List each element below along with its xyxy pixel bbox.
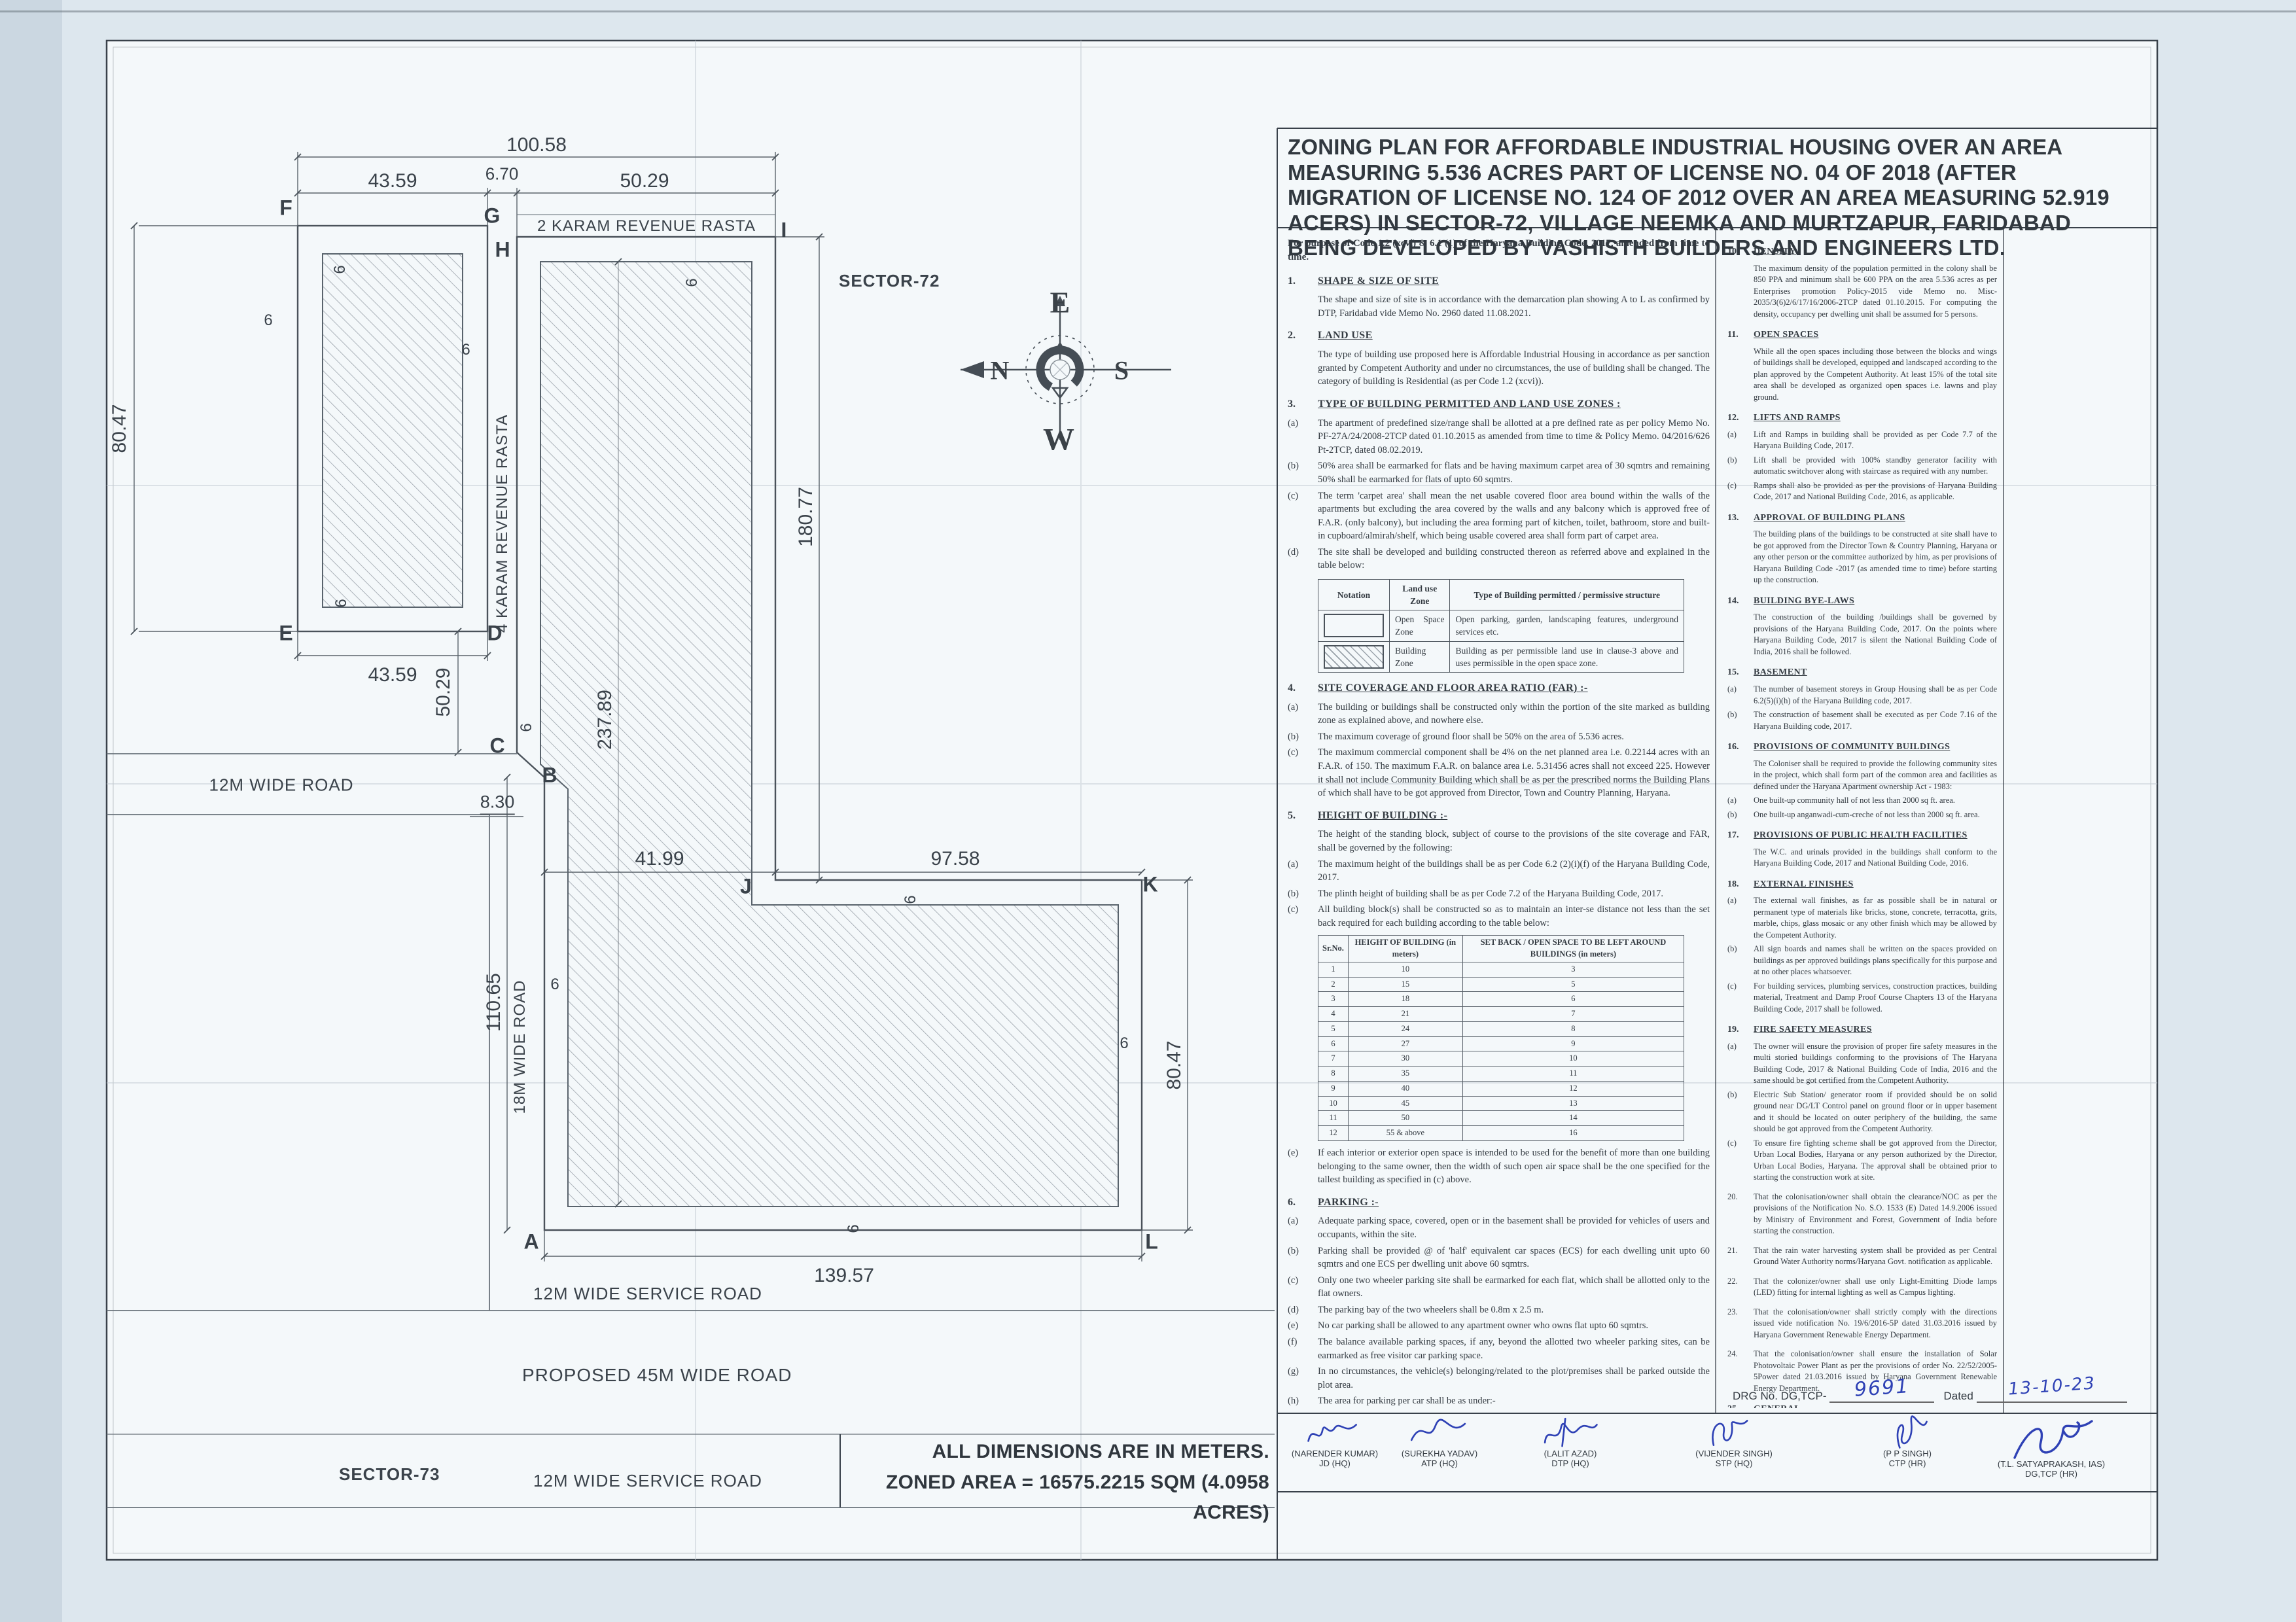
- clause-paragraph-text: Lift and Ramps in building shall be prov…: [1754, 429, 1997, 452]
- clause-paragraph-text: The term 'carpet area' shall mean the ne…: [1318, 489, 1710, 543]
- clause-paragraph-text: Only one two wheeler parking site shall …: [1318, 1274, 1710, 1301]
- clause-paragraph-text: Electric Sub Station/ generator room if …: [1754, 1089, 1997, 1135]
- clause-1: 1.SHAPE & SIZE OF SITEThe shape and size…: [1288, 274, 1710, 321]
- clause-paragraph: (g)In no circumstances, the vehicle(s) b…: [1288, 1365, 1710, 1392]
- clause-paragraph-text: The balance available parking spaces, if…: [1318, 1335, 1710, 1362]
- clause-paragraph: (b)All sign boards and names shall be wr…: [1727, 943, 1997, 978]
- clause-number: 3.: [1288, 397, 1318, 412]
- signatory-block: (SUREKHA YADAV)ATP (HQ): [1377, 1415, 1502, 1468]
- setback-cell: 30: [1348, 1051, 1462, 1067]
- clause-heading: BASEMENT: [1754, 666, 1807, 679]
- clause-paragraph-text: The number of basement storeys in Group …: [1754, 684, 1997, 707]
- clause-number: 15.: [1727, 666, 1754, 679]
- setback-cell: 55 & above: [1348, 1126, 1462, 1141]
- clause-heading-row: 2.LAND USE: [1288, 328, 1710, 344]
- clause-paragraph-text: All building block(s) shall be construct…: [1318, 903, 1710, 930]
- clause-heading: DENSITY: [1754, 245, 1796, 258]
- setback-cell: 12: [1318, 1126, 1349, 1141]
- clause-heading-row: 3.TYPE OF BUILDING PERMITTED AND LAND US…: [1288, 397, 1710, 412]
- dim-overall-width: 100.58: [506, 134, 567, 156]
- signature-icon: [1871, 1415, 1943, 1451]
- clause-paragraph: (c)For building services, plumbing servi…: [1727, 981, 1997, 1015]
- clause-paragraph: (e)No car parking shall be allowed to an…: [1288, 1319, 1710, 1333]
- clause-paragraph: 20.That the colonisation/owner shall obt…: [1727, 1191, 1997, 1237]
- signatory-designation: DTP (HQ): [1508, 1458, 1633, 1468]
- clause-paragraph: The height of the standing block, subjec…: [1288, 828, 1710, 855]
- setback-cell: 11: [1318, 1111, 1349, 1126]
- setback-row: 104513: [1318, 1096, 1684, 1111]
- setback-6-p1-top: 6: [331, 265, 349, 273]
- clause-4: 4.SITE COVERAGE AND FLOOR AREA RATIO (FA…: [1288, 681, 1710, 800]
- clause-paragraph: The construction of the building /buildi…: [1727, 612, 1997, 658]
- clause-paragraph: (b)The plinth height of building shall b…: [1288, 887, 1710, 901]
- clause-paragraph: The maximum density of the population pe…: [1727, 263, 1997, 321]
- clause-paragraph-label: (c): [1288, 1274, 1318, 1301]
- clause-paragraph: (a)The apartment of predefined size/rang…: [1288, 417, 1710, 457]
- dim-top-left: 43.59: [368, 170, 417, 192]
- signatory-name: (SUREKHA YADAV): [1377, 1449, 1502, 1458]
- setback-table: Sr.No.HEIGHT OF BUILDING (in meters)SET …: [1318, 935, 1684, 1141]
- clause-paragraph: (a)The owner will ensure the provision o…: [1727, 1041, 1997, 1087]
- setback-cell: 9: [1462, 1036, 1684, 1051]
- clause-paragraph-text: The parking bay of the two wheelers shal…: [1318, 1303, 1710, 1317]
- clause-number: 4.: [1288, 681, 1318, 696]
- setback-cell: 12: [1462, 1081, 1684, 1096]
- clause-paragraph-label: (a): [1727, 895, 1754, 941]
- compass-north-label: N: [991, 355, 1010, 386]
- point-G: G: [484, 204, 501, 228]
- clause-16: 16.PROVISIONS OF COMMUNITY BUILDINGSThe …: [1727, 741, 1997, 820]
- setback-6-p1-left: 6: [264, 311, 272, 330]
- setback-cell: 7: [1318, 1051, 1349, 1067]
- clause-heading-row: 10.DENSITY: [1727, 245, 1997, 258]
- clause-heading: GENERAL: [1754, 1403, 1801, 1408]
- clauses-column-right: 10.DENSITYThe maximum density of the pop…: [1727, 237, 1997, 1408]
- clause-paragraph-label: [1727, 263, 1754, 321]
- clause-paragraph-label: 23.: [1727, 1307, 1754, 1341]
- clause-6: 6.PARKING :-(a)Adequate parking space, c…: [1288, 1195, 1710, 1408]
- clause-paragraph-label: 20.: [1727, 1191, 1754, 1237]
- clause-paragraph: (b)Parking shall be provided @ of 'half'…: [1288, 1244, 1710, 1271]
- clause-heading-row: 19.FIRE SAFETY MEASURES: [1727, 1023, 1997, 1036]
- clause-14: 14.BUILDING BYE-LAWSThe construction of …: [1727, 595, 1997, 658]
- setback-header-row: Sr.No.HEIGHT OF BUILDING (in meters)SET …: [1318, 936, 1684, 962]
- clause-number: 14.: [1727, 595, 1754, 608]
- clause-paragraph: (e)If each interior or exterior open spa…: [1288, 1146, 1710, 1187]
- road-18m-wide: 18M WIDE ROAD: [511, 979, 529, 1114]
- scan-edge-shadow: [0, 0, 62, 1622]
- clause-paragraph-label: (e): [1288, 1319, 1318, 1333]
- setback-cell: 14: [1462, 1111, 1684, 1126]
- signature-icon: [1698, 1415, 1770, 1451]
- dim-p1-bottom: 43.59: [368, 664, 417, 686]
- clause-number: 25.: [1727, 1403, 1754, 1408]
- clause-paragraph-text: The plinth height of building shall be a…: [1318, 887, 1710, 901]
- dim-left-height: 80.47: [109, 404, 131, 453]
- clause-heading: PARKING :-: [1318, 1195, 1379, 1210]
- compass-east-label: E: [1050, 285, 1070, 320]
- clause-heading: PROVISIONS OF COMMUNITY BUILDINGS: [1754, 741, 1950, 754]
- clause-heading-row: 15.BASEMENT: [1727, 666, 1997, 679]
- setback-cell: 10: [1318, 1096, 1349, 1111]
- clause-paragraph: The building plans of the buildings to b…: [1727, 529, 1997, 586]
- clause-paragraph: (b)One built-up anganwadi-cum-creche of …: [1727, 809, 1997, 821]
- setback-cell: 1: [1318, 962, 1349, 977]
- clause-23: 23.That the colonisation/owner shall str…: [1727, 1307, 1997, 1341]
- clause-paragraph-text: If each interior or exterior open space …: [1318, 1146, 1710, 1187]
- setback-cell: 40: [1348, 1081, 1462, 1096]
- clause-paragraph: (a)The building or buildings shall be co…: [1288, 701, 1710, 728]
- clause-heading: BUILDING BYE-LAWS: [1754, 595, 1854, 608]
- clause-paragraph: (b)Electric Sub Station/ generator room …: [1727, 1089, 1997, 1135]
- clause-12: 12.LIFTS AND RAMPS(a)Lift and Ramps in b…: [1727, 412, 1997, 503]
- clause-paragraph: (f)The balance available parking spaces,…: [1288, 1335, 1710, 1362]
- clause-paragraph: The shape and size of site is in accorda…: [1288, 293, 1710, 320]
- signatory-block: (VIJENDER SINGH)STP (HQ): [1672, 1415, 1796, 1468]
- clause-paragraph: (h)The area for parking per car shall be…: [1288, 1394, 1710, 1408]
- clause-heading-row: 6.PARKING :-: [1288, 1195, 1710, 1210]
- clause-paragraph-label: [1727, 529, 1754, 586]
- clause-paragraph: (a)The maximum height of the buildings s…: [1288, 858, 1710, 885]
- signature-icon: [1404, 1415, 1475, 1451]
- clause-heading-row: 5.HEIGHT OF BUILDING :-: [1288, 809, 1710, 824]
- land-use-row: Open Space ZoneOpen parking, garden, lan…: [1318, 610, 1684, 641]
- clauses-column-left: For purpose of Code 1.2 (xcvi) & 6.1 (1)…: [1288, 237, 1710, 1408]
- point-L: L: [1145, 1230, 1158, 1254]
- clause-paragraph-text: The apartment of predefined size/range s…: [1318, 417, 1710, 457]
- clause-paragraph-text: The maximum commercial component shall b…: [1318, 746, 1710, 800]
- dim-top-road: 6.70: [486, 164, 519, 185]
- point-F: F: [279, 196, 292, 220]
- clause-18: 18.EXTERNAL FINISHES(a)The external wall…: [1727, 878, 1997, 1015]
- clause-paragraph-label: (b): [1288, 1244, 1318, 1271]
- signatory-designation: CTP (HR): [1845, 1458, 1969, 1468]
- clause-5: 5.HEIGHT OF BUILDING :-The height of the…: [1288, 809, 1710, 1187]
- clause-paragraph-label: (b): [1727, 709, 1754, 732]
- clause-paragraph-label: (a): [1288, 1214, 1318, 1241]
- clause-15: 15.BASEMENT(a)The number of basement sto…: [1727, 666, 1997, 732]
- signatory-name: (P P SINGH): [1845, 1449, 1969, 1458]
- notes-intro: For purpose of Code 1.2 (xcvi) & 6.1 (1)…: [1288, 237, 1710, 265]
- clause-17: 17.PROVISIONS OF PUBLIC HEALTH FACILITIE…: [1727, 829, 1997, 870]
- setback-cell: 7: [1462, 1007, 1684, 1022]
- clause-paragraph-text: The height of the standing block, subjec…: [1318, 828, 1710, 855]
- dim-jog: 8.30: [480, 792, 515, 815]
- setback-cell: 10: [1348, 962, 1462, 977]
- land-use-header: Type of Building permitted / permissive …: [1450, 580, 1684, 610]
- clause-paragraph-label: (d): [1288, 546, 1318, 573]
- land-use-table: NotationLand use ZoneType of Building pe…: [1318, 579, 1684, 673]
- setback-cell: 18: [1348, 992, 1462, 1007]
- clause-paragraph: 21.That the rain water harvesting system…: [1727, 1245, 1997, 1268]
- clause-number: 10.: [1727, 245, 1754, 258]
- clause-number: 18.: [1727, 878, 1754, 891]
- clause-paragraph-text: The area for parking per car shall be as…: [1318, 1394, 1710, 1408]
- setback-cell: 4: [1318, 1007, 1349, 1022]
- clause-paragraph-label: (d): [1288, 1303, 1318, 1317]
- clause-paragraph-label: (a): [1727, 795, 1754, 807]
- clause-19: 19.FIRE SAFETY MEASURES(a)The owner will…: [1727, 1023, 1997, 1184]
- clause-paragraph-label: (b): [1727, 809, 1754, 821]
- clause-paragraph-label: (c): [1288, 903, 1318, 930]
- clause-paragraph-label: (c): [1288, 489, 1318, 543]
- setback-6-p1-bottom: 6: [332, 599, 351, 607]
- land-use-header: Land use Zone: [1390, 580, 1450, 610]
- dim-top-strip: 50.29: [620, 170, 669, 192]
- clause-heading: LIFTS AND RAMPS: [1754, 412, 1841, 425]
- clause-paragraph-text: The maximum density of the population pe…: [1754, 263, 1997, 321]
- point-B: B: [542, 764, 557, 788]
- clause-paragraph-text: Adequate parking space, covered, open or…: [1318, 1214, 1710, 1241]
- clause-paragraph: (d)The site shall be developed and build…: [1288, 546, 1710, 573]
- clause-paragraph: 22.That the colonizer/owner shall use on…: [1727, 1276, 1997, 1299]
- clause-paragraph-text: The W.C. and urinals provided in the bui…: [1754, 847, 1997, 870]
- setback-row: 115014: [1318, 1111, 1684, 1126]
- clause-paragraph-label: (a): [1288, 701, 1318, 728]
- clause-paragraph-label: (c): [1727, 1138, 1754, 1184]
- clause-number: 1.: [1288, 274, 1318, 289]
- clause-heading: LAND USE: [1318, 328, 1373, 344]
- drg-number-handwritten: 9691: [1854, 1375, 1911, 1402]
- road-4-karam-rasta: 4 KARAM REVENUE RASTA: [493, 414, 512, 633]
- setback-cell: 11: [1462, 1067, 1684, 1082]
- clause-paragraph-text: All sign boards and names shall be writt…: [1754, 943, 1997, 978]
- clause-paragraph: (b)50% area shall be earmarked for flats…: [1288, 459, 1710, 486]
- setback-row: 6279: [1318, 1036, 1684, 1051]
- clause-paragraph-label: [1727, 346, 1754, 404]
- clause-heading: SITE COVERAGE AND FLOOR AREA RATIO (FAR)…: [1318, 681, 1588, 696]
- setback-header: SET BACK / OPEN SPACE TO BE LEFT AROUND …: [1462, 936, 1684, 962]
- signature-icon: [2002, 1415, 2100, 1462]
- clause-paragraph-text: The construction of the building /buildi…: [1754, 612, 1997, 658]
- signature-row: (NARENDER KUMAR)JD (HQ)(SUREKHA YADAV)AT…: [1277, 1415, 2157, 1490]
- clause-paragraph-text: Lift shall be provided with 100% standby…: [1754, 455, 1997, 478]
- road-12m-service-lower: 12M WIDE SERVICE ROAD: [533, 1471, 762, 1491]
- setback-cell: 5: [1462, 977, 1684, 992]
- clause-number: 13.: [1727, 512, 1754, 525]
- clause-paragraph-label: 21.: [1727, 1245, 1754, 1268]
- sector-73-label: SECTOR-73: [339, 1464, 440, 1485]
- clause-paragraph-label: [1727, 758, 1754, 793]
- clause-heading-row: 12.LIFTS AND RAMPS: [1727, 412, 1997, 425]
- point-K: K: [1142, 873, 1157, 897]
- drg-dated-label: Dated: [1943, 1390, 1973, 1402]
- dims-note: ALL DIMENSIONS ARE IN METERS.: [840, 1437, 1269, 1468]
- clause-paragraph: (a)Adequate parking space, covered, open…: [1288, 1214, 1710, 1241]
- point-H: H: [495, 238, 510, 262]
- clause-paragraph-text: The building plans of the buildings to b…: [1754, 529, 1997, 586]
- clause-paragraph-label: (a): [1727, 429, 1754, 452]
- clause-paragraph-text: Parking shall be provided @ of 'half' eq…: [1318, 1244, 1710, 1271]
- clause-paragraph-label: (g): [1288, 1365, 1318, 1392]
- drg-date-blank: 13-10-23: [1977, 1386, 2127, 1403]
- clause-paragraph: (c)To ensure fire fighting scheme shall …: [1727, 1138, 1997, 1184]
- clause-paragraph-text: Ramps shall also be provided as per the …: [1754, 480, 1997, 503]
- signatory-block: (T.L. SATYAPRAKASH, IAS)DG,TCP (HR): [1969, 1415, 2133, 1479]
- setback-row: 5248: [1318, 1021, 1684, 1036]
- clause-paragraph: (b)Lift shall be provided with 100% stan…: [1727, 455, 1997, 478]
- clause-paragraph-text: The maximum coverage of ground floor sha…: [1318, 730, 1710, 744]
- clause-paragraph-text: The site shall be developed and building…: [1318, 546, 1710, 573]
- clause-paragraph-text: One built-up community hall of not less …: [1754, 795, 1997, 807]
- dim-left-mid: 50.29: [433, 667, 455, 716]
- clause-heading: OPEN SPACES: [1754, 328, 1818, 342]
- clause-paragraph: (a)The external wall finishes, as far as…: [1727, 895, 1997, 941]
- clause-paragraph-label: (h): [1288, 1394, 1318, 1408]
- clause-paragraph-label: (e): [1288, 1146, 1318, 1187]
- setback-row: 4217: [1318, 1007, 1684, 1022]
- setback-cell: 6: [1318, 1036, 1349, 1051]
- clause-paragraph-text: 50% area shall be earmarked for flats an…: [1318, 459, 1710, 486]
- setback-6-p2-right: 6: [1120, 1034, 1128, 1053]
- clause-paragraph: (d)The parking bay of the two wheelers s…: [1288, 1303, 1710, 1317]
- clause-11: 11.OPEN SPACESWhile all the open spaces …: [1727, 328, 1997, 403]
- clause-paragraph-text: The maximum height of the buildings shal…: [1318, 858, 1710, 885]
- setback-row: 94012: [1318, 1081, 1684, 1096]
- signatory-designation: DG,TCP (HR): [1969, 1469, 2133, 1479]
- setback-row: 73010: [1318, 1051, 1684, 1067]
- clause-heading-row: 14.BUILDING BYE-LAWS: [1727, 595, 1997, 608]
- clause-paragraph-label: [1288, 293, 1318, 320]
- clause-10: 10.DENSITYThe maximum density of the pop…: [1727, 245, 1997, 320]
- clause-22: 22.That the colonizer/owner shall use on…: [1727, 1276, 1997, 1299]
- clause-number: 17.: [1727, 829, 1754, 842]
- clause-number: 6.: [1288, 1195, 1318, 1210]
- clause-2: 2.LAND USEThe type of building use propo…: [1288, 328, 1710, 388]
- clause-paragraph-label: (a): [1288, 858, 1318, 885]
- setback-cell: 8: [1318, 1067, 1349, 1082]
- point-I: I: [781, 219, 787, 243]
- land-use-type: Open parking, garden, landscaping featur…: [1450, 610, 1684, 641]
- setback-cell: 15: [1348, 977, 1462, 992]
- clause-paragraph: (a)The number of basement storeys in Gro…: [1727, 684, 1997, 707]
- clause-heading-row: 11.OPEN SPACES: [1727, 328, 1997, 342]
- setback-cell: 8: [1462, 1021, 1684, 1036]
- setback-cell: 16: [1462, 1126, 1684, 1141]
- clause-heading: SHAPE & SIZE OF SITE: [1318, 274, 1439, 289]
- clause-paragraph: (a)One built-up community hall of not le…: [1727, 795, 1997, 807]
- road-12m-service-upper: 12M WIDE SERVICE ROAD: [533, 1284, 762, 1304]
- clause-heading: FIRE SAFETY MEASURES: [1754, 1023, 1872, 1036]
- scan-top-line: [0, 10, 2296, 12]
- road-proposed-45m: PROPOSED 45M WIDE ROAD: [522, 1365, 792, 1386]
- signature-icon: [1299, 1415, 1371, 1451]
- setback-cell: 50: [1348, 1111, 1462, 1126]
- clause-heading: TYPE OF BUILDING PERMITTED AND LAND USE …: [1318, 397, 1621, 412]
- clause-paragraph: The W.C. and urinals provided in the bui…: [1727, 847, 1997, 870]
- clause-heading: HEIGHT OF BUILDING :-: [1318, 809, 1447, 824]
- clause-paragraph-text: One built-up anganwadi-cum-creche of not…: [1754, 809, 1997, 821]
- dim-bottom-width: 139.57: [814, 1265, 874, 1287]
- setback-cell: 10: [1462, 1051, 1684, 1067]
- clause-paragraph-text: That the colonizer/owner shall use only …: [1754, 1276, 1997, 1299]
- clause-paragraph-text: The construction of basement shall be ex…: [1754, 709, 1997, 732]
- clause-paragraph-text: In no circumstances, the vehicle(s) belo…: [1318, 1365, 1710, 1392]
- clause-paragraph: (c)All building block(s) shall be constr…: [1288, 903, 1710, 930]
- setback-cell: 6: [1462, 992, 1684, 1007]
- clause-heading-row: 13.APPROVAL OF BUILDING PLANS: [1727, 512, 1997, 525]
- clause-paragraph-label: (b): [1727, 455, 1754, 478]
- land-use-swatch-cell: [1318, 641, 1390, 672]
- clause-heading-row: 18.EXTERNAL FINISHES: [1727, 878, 1997, 891]
- signatory-name: (LALIT AZAD): [1508, 1449, 1633, 1458]
- land-use-row: Building ZoneBuilding as per permissible…: [1318, 641, 1684, 672]
- setback-cell: 24: [1348, 1021, 1462, 1036]
- sector-72-label: SECTOR-72: [839, 271, 940, 291]
- clause-13: 13.APPROVAL OF BUILDING PLANSThe buildin…: [1727, 512, 1997, 586]
- setback-cell: 27: [1348, 1036, 1462, 1051]
- dim-strip-height: 237.89: [594, 690, 616, 750]
- clause-paragraph-text: The owner will ensure the provision of p…: [1754, 1041, 1997, 1087]
- setback-6-p2-bottom: 6: [845, 1224, 863, 1233]
- clause-paragraph-label: [1288, 348, 1318, 389]
- clause-heading-row: 4.SITE COVERAGE AND FLOOR AREA RATIO (FA…: [1288, 681, 1710, 696]
- clause-heading-row: 16.PROVISIONS OF COMMUNITY BUILDINGS: [1727, 741, 1997, 754]
- clause-paragraph-label: (b): [1727, 943, 1754, 978]
- clause-number: 2.: [1288, 328, 1318, 344]
- setback-row: 1103: [1318, 962, 1684, 977]
- clause-paragraph: (c)Only one two wheeler parking site sha…: [1288, 1274, 1710, 1301]
- clause-paragraph-text: That the colonisation/owner shall obtain…: [1754, 1191, 1997, 1237]
- setback-row: 3186: [1318, 992, 1684, 1007]
- clause-paragraph-label: [1727, 612, 1754, 658]
- clause-paragraph-text: While all the open spaces including thos…: [1754, 346, 1997, 404]
- clause-heading: APPROVAL OF BUILDING PLANS: [1754, 512, 1905, 525]
- setback-cell: 21: [1348, 1007, 1462, 1022]
- setback-row: 1255 & above16: [1318, 1126, 1684, 1141]
- clause-paragraph-text: The type of building use proposed here i…: [1318, 348, 1710, 389]
- clause-paragraph: While all the open spaces including thos…: [1727, 346, 1997, 404]
- clause-paragraph-label: (b): [1288, 887, 1318, 901]
- drg-number-line: DRG No. DG,TCP- 9691 Dated 13-10-23: [1733, 1386, 2127, 1403]
- zoning-plan-scan: { "title_block": { "text": "ZONING PLAN …: [0, 0, 2296, 1622]
- dim-lower-left-top: 41.99: [635, 848, 684, 870]
- signatory-name: (T.L. SATYAPRAKASH, IAS): [1969, 1459, 2133, 1469]
- clause-paragraph-text: The external wall finishes, as far as po…: [1754, 895, 1997, 941]
- clause-paragraph: (c)The term 'carpet area' shall mean the…: [1288, 489, 1710, 543]
- clause-heading: PROVISIONS OF PUBLIC HEALTH FACILITIES: [1754, 829, 1968, 842]
- dimensions-note-box: ALL DIMENSIONS ARE IN METERS. ZONED AREA…: [840, 1437, 1269, 1505]
- road-12m-wide: 12M WIDE ROAD: [209, 775, 353, 796]
- clause-3: 3.TYPE OF BUILDING PERMITTED AND LAND US…: [1288, 397, 1710, 673]
- point-C: C: [489, 734, 504, 758]
- compass-west-label: W: [1043, 422, 1074, 458]
- clause-number: 16.: [1727, 741, 1754, 754]
- clause-paragraph: 23.That the colonisation/owner shall str…: [1727, 1307, 1997, 1341]
- clause-paragraph-text: That the rain water harvesting system sh…: [1754, 1245, 1997, 1268]
- signature-icon: [1534, 1415, 1606, 1451]
- compass-south-label: S: [1114, 355, 1129, 386]
- signatory-name: (VIJENDER SINGH): [1672, 1449, 1796, 1458]
- clause-paragraph: (b)The maximum coverage of ground floor …: [1288, 730, 1710, 744]
- point-J: J: [740, 875, 752, 899]
- dim-right-height: 80.47: [1163, 1040, 1186, 1089]
- clause-paragraph-label: (c): [1288, 746, 1318, 800]
- signatory-designation: STP (HQ): [1672, 1458, 1796, 1468]
- clause-paragraph: The type of building use proposed here i…: [1288, 348, 1710, 389]
- clause-number: 12.: [1727, 412, 1754, 425]
- land-use-zone: Building Zone: [1390, 641, 1450, 672]
- setback-header: HEIGHT OF BUILDING (in meters): [1348, 936, 1462, 962]
- clause-paragraph-label: (b): [1727, 1089, 1754, 1135]
- point-A: A: [523, 1230, 539, 1254]
- clause-paragraph: (c)Ramps shall also be provided as per t…: [1727, 480, 1997, 503]
- open-space-swatch: [1324, 614, 1384, 637]
- clause-paragraph-label: (b): [1288, 459, 1318, 486]
- clause-paragraph: (c)The maximum commercial component shal…: [1288, 746, 1710, 800]
- land-use-zone: Open Space Zone: [1390, 610, 1450, 641]
- setback-cell: 45: [1348, 1096, 1462, 1111]
